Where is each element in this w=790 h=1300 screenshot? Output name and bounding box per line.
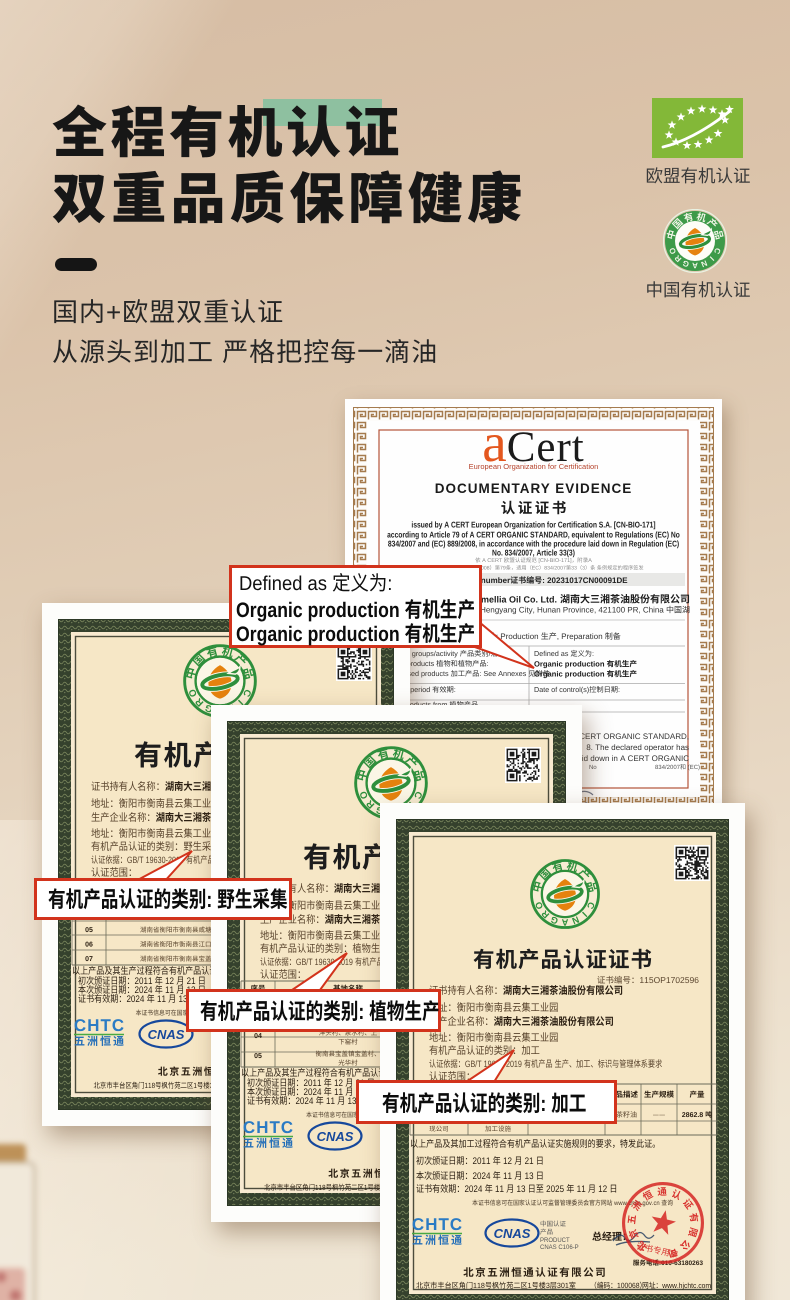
svg-text:CNAS: CNAS (148, 1027, 185, 1042)
svg-text:CNAS: CNAS (494, 1226, 531, 1241)
svg-text:CNAS: CNAS (317, 1129, 354, 1144)
svg-text:CNAS C106-P: CNAS C106-P (540, 1245, 579, 1251)
svg-text:PRODUCT: PRODUCT (540, 1238, 570, 1244)
